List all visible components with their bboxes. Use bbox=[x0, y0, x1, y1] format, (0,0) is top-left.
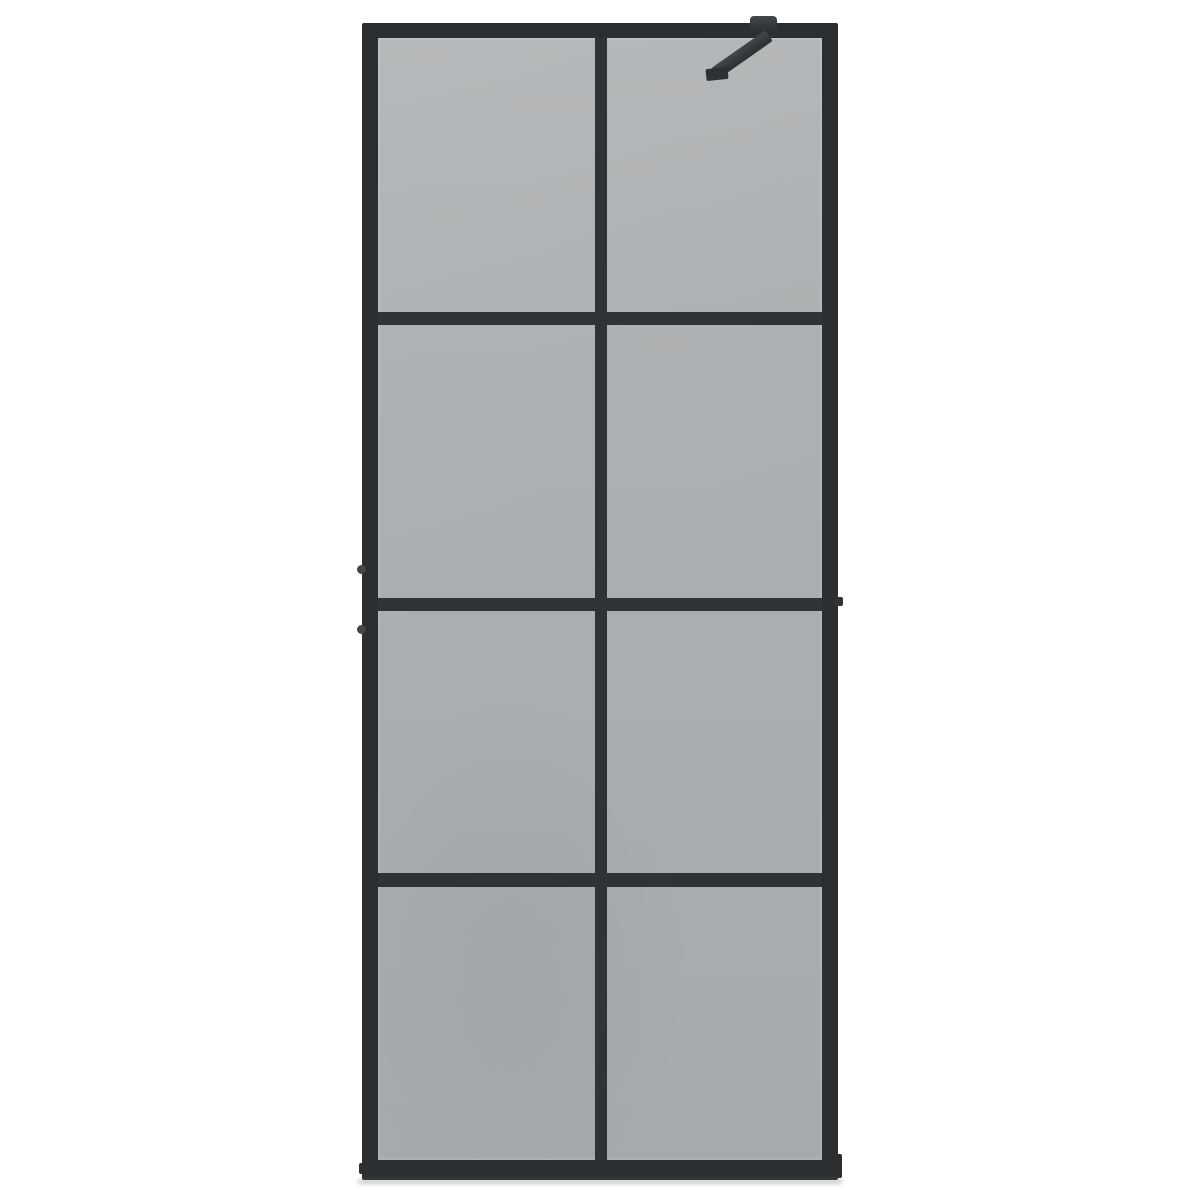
right-wall-bracket-stub bbox=[833, 597, 843, 606]
wall-anchor-screw-top bbox=[357, 565, 366, 574]
horizontal-mullion-3 bbox=[378, 873, 822, 887]
product-photo-canvas bbox=[0, 0, 1200, 1200]
horizontal-mullion-2 bbox=[378, 598, 822, 611]
bottom-right-frame-joint bbox=[835, 1154, 842, 1178]
horizontal-mullion-1 bbox=[378, 312, 822, 325]
tinted-glass-sheet bbox=[378, 38, 822, 1160]
floor-shadow bbox=[358, 1179, 842, 1184]
bottom-left-frame-joint bbox=[359, 1163, 366, 1174]
wall-anchor-screw-bottom bbox=[357, 625, 366, 634]
shower-screen-panel bbox=[362, 23, 838, 1180]
support-bar-clamp bbox=[750, 16, 777, 32]
support-bar-foot bbox=[705, 67, 728, 81]
